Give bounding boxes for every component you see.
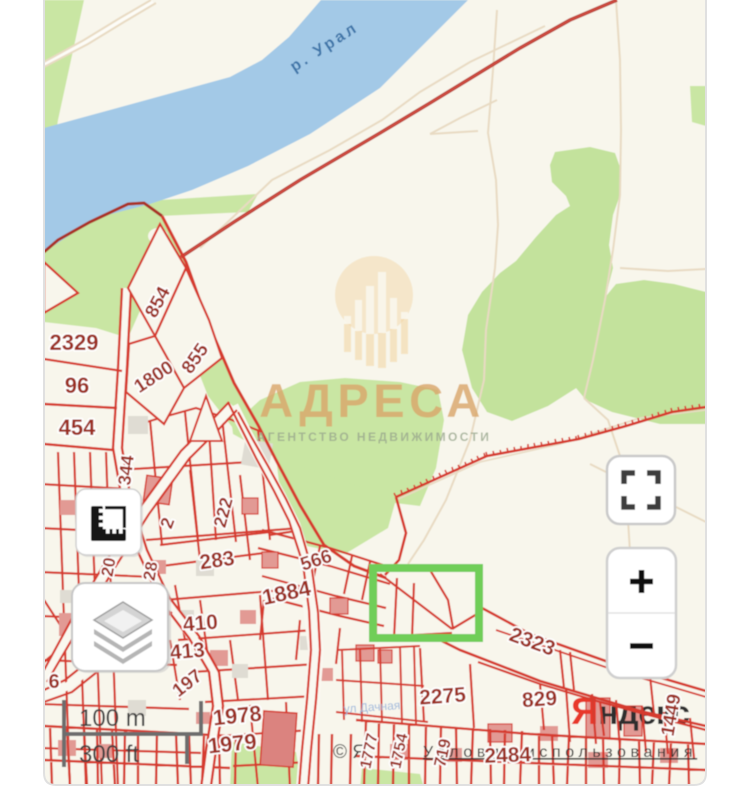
svg-text:2329: 2329 xyxy=(50,330,99,355)
svg-text:2484: 2484 xyxy=(484,743,532,768)
svg-text:АДРЕСА: АДРЕСА xyxy=(259,374,485,427)
svg-text:454: 454 xyxy=(59,415,96,440)
svg-text:344: 344 xyxy=(114,454,138,486)
svg-text:283: 283 xyxy=(198,547,236,575)
svg-text:1979: 1979 xyxy=(207,729,258,759)
svg-text:АГЕНТСТВО НЕДВИЖИМОСТИ: АГЕНТСТВО НЕДВИЖИМОСТИ xyxy=(257,430,492,444)
svg-text:410: 410 xyxy=(182,611,219,637)
svg-text:2275: 2275 xyxy=(418,683,467,709)
svg-text:6: 6 xyxy=(48,671,59,693)
svg-text:96: 96 xyxy=(65,373,89,398)
svg-text:100 m: 100 m xyxy=(79,705,146,732)
svg-text:28: 28 xyxy=(140,560,162,582)
svg-text:20: 20 xyxy=(98,556,120,578)
svg-text:300 ft: 300 ft xyxy=(79,741,139,768)
svg-text:413: 413 xyxy=(169,639,206,665)
svg-text:829: 829 xyxy=(521,687,558,712)
svg-text:Условия использования: Условия использования xyxy=(423,744,697,761)
svg-text:1978: 1978 xyxy=(212,701,263,731)
